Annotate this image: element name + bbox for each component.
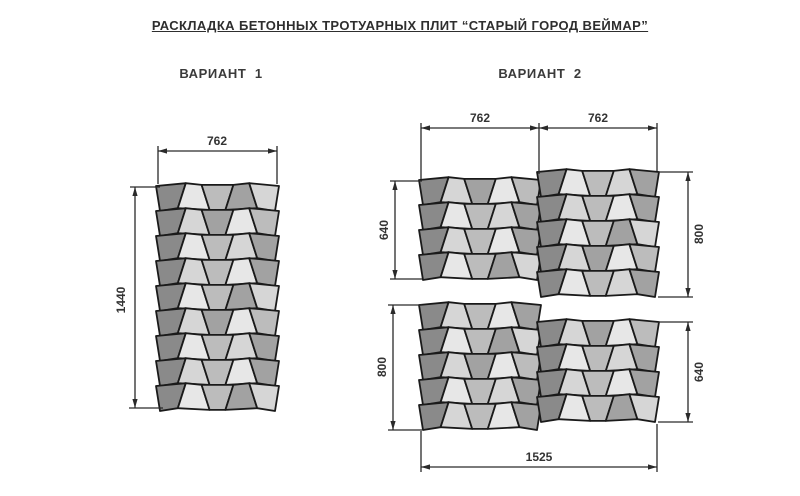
dimension-label-v1-width: 762 (207, 134, 227, 148)
dimension-arrow-icon (685, 413, 690, 422)
dimension-arrow-icon (158, 148, 167, 153)
variant2-lower-right (537, 319, 659, 422)
dimension-arrow-icon (132, 187, 137, 196)
dimension-arrow-icon (685, 288, 690, 297)
dimension-arrow-icon (648, 464, 657, 469)
dimension-arrow-icon (392, 181, 397, 190)
dimension-v1-height: 1440 (114, 187, 163, 408)
dimension-arrow-icon (648, 125, 657, 130)
dimension-arrow-icon (268, 148, 277, 153)
paving-layout-diagram: 76214407627626408008006401525 (0, 0, 800, 496)
dimension-arrow-icon (392, 270, 397, 279)
dimension-v2-total-width: 1525 (421, 424, 657, 472)
dimension-v2-top-width-left: 762 (421, 111, 539, 179)
dimension-v1-width: 762 (158, 134, 277, 184)
dimension-arrow-icon (421, 125, 430, 130)
dimension-v2-upper-right-height: 800 (658, 172, 706, 297)
diagram-canvas: РАСКЛАДКА БЕТОННЫХ ТРОТУАРНЫХ ПЛИТ “СТАР… (0, 0, 800, 496)
dimension-v2-lower-right-height: 640 (658, 322, 706, 422)
variant2-upper-right (537, 169, 659, 297)
dimension-arrow-icon (132, 399, 137, 408)
dimension-arrow-icon (539, 125, 548, 130)
dimension-arrow-icon (390, 305, 395, 314)
dimension-arrow-icon (390, 421, 395, 430)
dimension-arrow-icon (421, 464, 430, 469)
dimension-v2-upper-left-height: 640 (377, 181, 422, 279)
dimension-label-v2-top-width-right: 762 (588, 111, 608, 125)
dimension-label-v2-total-width: 1525 (526, 450, 553, 464)
variant2-lower-left (419, 302, 541, 430)
dimension-label-v1-height: 1440 (114, 286, 128, 313)
variant1-block (156, 183, 279, 411)
dimension-label-v2-top-width-left: 762 (470, 111, 490, 125)
variant2-upper-left (419, 177, 541, 280)
dimension-label-v2-upper-right-height: 800 (692, 224, 706, 244)
dimension-arrow-icon (530, 125, 539, 130)
dimension-arrow-icon (685, 322, 690, 331)
dimension-label-v2-lower-right-height: 640 (692, 362, 706, 382)
dimension-v2-top-width-right: 762 (539, 111, 657, 171)
dimension-v2-lower-left-height: 800 (375, 305, 422, 430)
dimension-label-v2-lower-left-height: 800 (375, 357, 389, 377)
dimension-label-v2-upper-left-height: 640 (377, 220, 391, 240)
dimension-arrow-icon (685, 172, 690, 181)
